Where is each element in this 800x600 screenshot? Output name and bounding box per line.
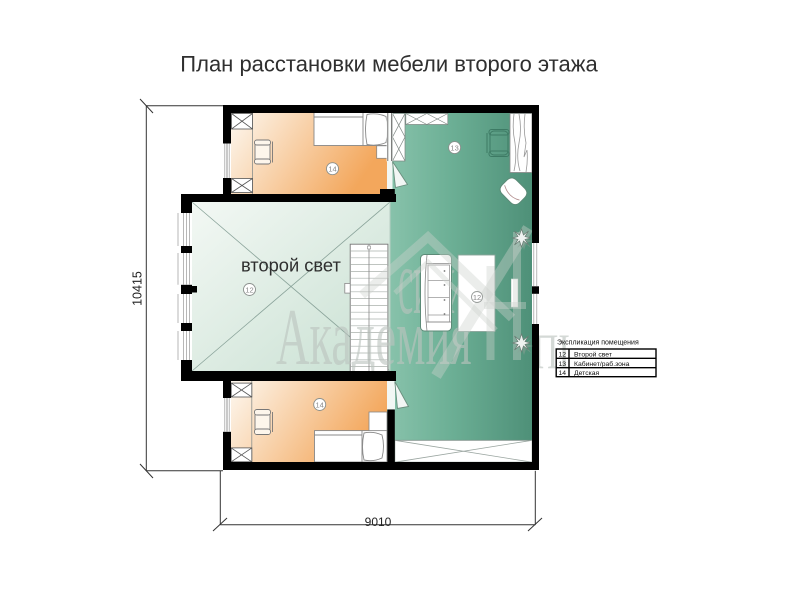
svg-text:14: 14 — [316, 400, 324, 409]
svg-text:14: 14 — [559, 370, 567, 377]
svg-text:10415: 10415 — [131, 271, 145, 306]
svg-text:Экспликация помещения: Экспликация помещения — [557, 340, 639, 347]
svg-text:второй свет: второй свет — [241, 255, 341, 276]
svg-text:14: 14 — [328, 165, 336, 174]
svg-text:12: 12 — [473, 293, 481, 302]
svg-text:13: 13 — [450, 143, 458, 152]
svg-text:Детская: Детская — [574, 370, 599, 377]
svg-text:12: 12 — [559, 352, 567, 359]
svg-text:13: 13 — [559, 361, 567, 368]
svg-text:9010: 9010 — [365, 515, 392, 529]
svg-text:Кабинет/раб.зона: Кабинет/раб.зона — [574, 360, 630, 368]
svg-text:План расстановки мебели второг: План расстановки мебели второго этажа — [180, 52, 598, 77]
svg-text:12: 12 — [245, 285, 253, 294]
svg-text:Второй свет: Второй свет — [574, 351, 612, 359]
